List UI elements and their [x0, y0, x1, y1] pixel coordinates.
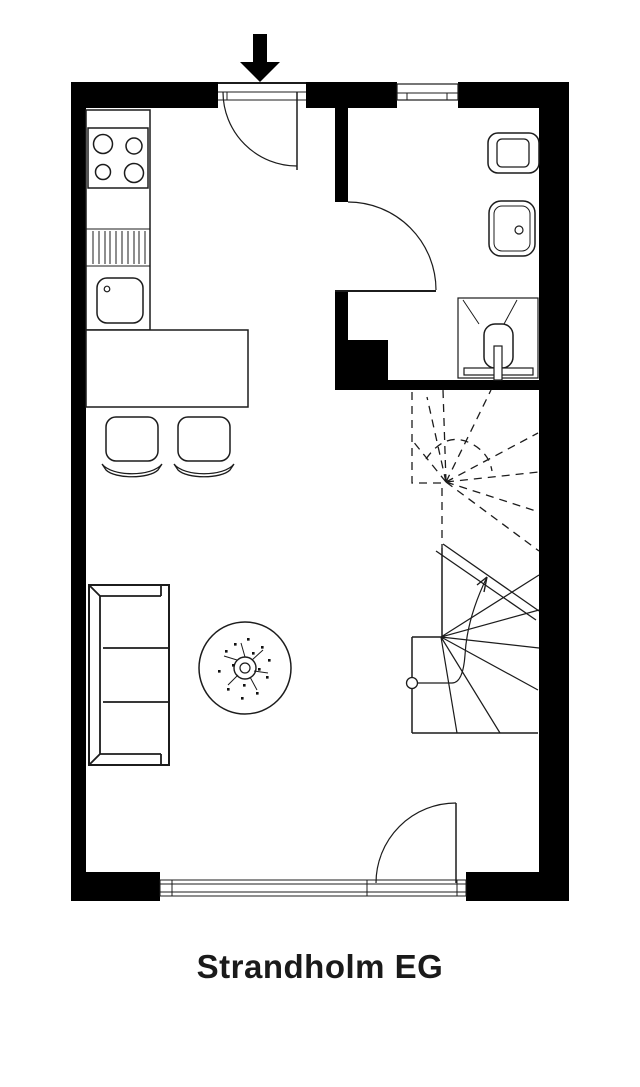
- chair-back: [174, 464, 234, 477]
- dining-table: [86, 330, 248, 407]
- terrace-door-swing: [376, 803, 456, 883]
- wall-bathroom-left-lower: [335, 292, 348, 340]
- wall-bottom-right: [466, 872, 569, 901]
- staircase: [407, 390, 540, 733]
- round-table: [199, 622, 291, 714]
- terrace-door: [376, 803, 456, 883]
- wall-bathroom-corner-block: [335, 340, 388, 380]
- chair-back: [102, 464, 162, 477]
- bathroom-window-frame: [397, 84, 458, 100]
- washbasin: [489, 201, 535, 256]
- floor-plan: Strandholm EG: [0, 0, 640, 1087]
- wall-bathroom-left-upper: [335, 108, 348, 202]
- floor-plan-drawing: [0, 0, 640, 1087]
- bathroom-window: [397, 84, 458, 100]
- toilet: [488, 133, 539, 173]
- chair: [102, 417, 162, 477]
- plant-table: [199, 622, 291, 714]
- stair-upper-boundary: [412, 392, 442, 548]
- wall-bottom-left: [71, 872, 160, 901]
- entrance-frame: [218, 92, 306, 100]
- window-frame: [160, 880, 466, 896]
- stair-newel-post: [407, 678, 418, 689]
- shower: [458, 298, 538, 380]
- washbasin-inner: [494, 206, 530, 251]
- stair-lower-treads: [441, 575, 539, 733]
- chair-seat: [106, 417, 158, 461]
- kitchen-sink: [97, 278, 143, 323]
- kitchen: [86, 110, 150, 330]
- chair-seat: [178, 417, 230, 461]
- sofa: [89, 585, 169, 765]
- wall-right: [539, 82, 569, 901]
- toilet-seat: [497, 139, 529, 167]
- chair: [174, 417, 234, 477]
- living-room-window: [160, 880, 466, 896]
- stair-cut-line: [436, 544, 539, 620]
- bathroom-door: [335, 202, 436, 291]
- plan-title: Strandholm EG: [0, 948, 640, 986]
- wall-bathroom-bottom: [335, 380, 540, 390]
- wall-top-mid: [306, 82, 397, 108]
- bathroom-door-swing: [348, 202, 436, 290]
- entrance-door: [218, 83, 306, 170]
- entrance-arrow-icon: [240, 34, 280, 82]
- wall-left: [71, 82, 86, 901]
- wall-top-left: [71, 82, 218, 108]
- sofa-outline: [89, 585, 169, 765]
- stair-upper-treads: [412, 390, 539, 551]
- shower-handle: [494, 346, 502, 380]
- entrance-door-swing: [223, 92, 297, 166]
